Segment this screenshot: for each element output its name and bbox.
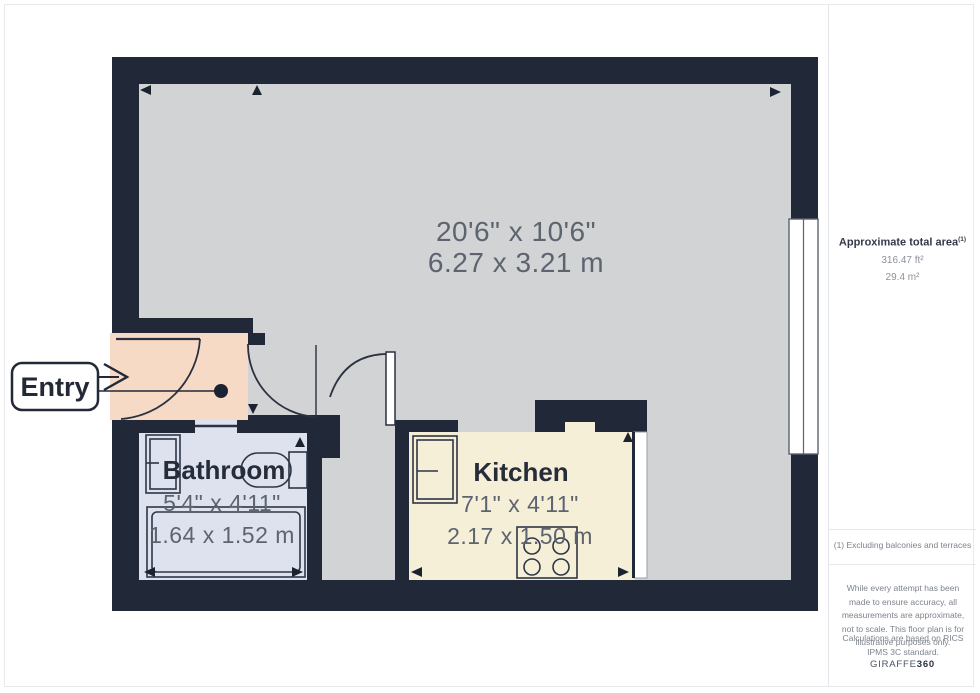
total-area-title-text: Approximate total area [839,237,958,249]
kitchen-top-wall-left [395,420,458,432]
divider [829,564,976,565]
total-area-m: 29.4 m² [829,272,976,283]
divider [829,529,976,530]
kitchen-label: Kitchen [473,457,568,487]
total-area-title: Approximate total area(1) [829,236,976,249]
brand-suffix: 360 [917,659,935,670]
bathroom-top-wall-right [237,415,340,433]
total-area-ft: 316.47 ft² [829,255,976,266]
standard-text: Calculations are based on RICS IPMS 3C s… [837,632,969,659]
area-footnote: (1) Excluding balconies and terraces [829,540,976,550]
main-room-dim-imperial: 20'6" x 10'6" [436,216,596,247]
total-area-block: Approximate total area(1) 316.47 ft² 29.… [829,236,976,283]
bathroom-dim-metric: 1.64 x 1.52 m [149,522,295,548]
giraffe360-logo: GIRAFFE360 [829,659,976,670]
kitchen-partition [634,432,648,578]
entry-label: Entry [20,372,89,402]
main-room-dim-metric: 6.27 x 3.21 m [428,247,604,278]
kitchen-wall-notch [565,422,595,432]
window [789,219,818,454]
entry-point-dot [214,384,228,398]
info-sidebar: Approximate total area(1) 316.47 ft² 29.… [828,4,976,687]
kitchen-left-wall [395,420,409,580]
kitchen-dim-metric: 2.17 x 1.50 m [447,523,593,549]
kitchen-dim-imperial: 7'1" x 4'11" [461,491,579,517]
bathroom-right-wall [307,433,322,580]
bathroom-top-wall-left [139,418,195,433]
door-stub-wall [322,433,340,458]
bathroom-dim-imperial: 5'4" x 4'11" [163,490,281,516]
footnote-marker: (1) [958,236,966,243]
bathroom-label: Bathroom [163,455,286,485]
brand-name: GIRAFFE [870,659,917,670]
